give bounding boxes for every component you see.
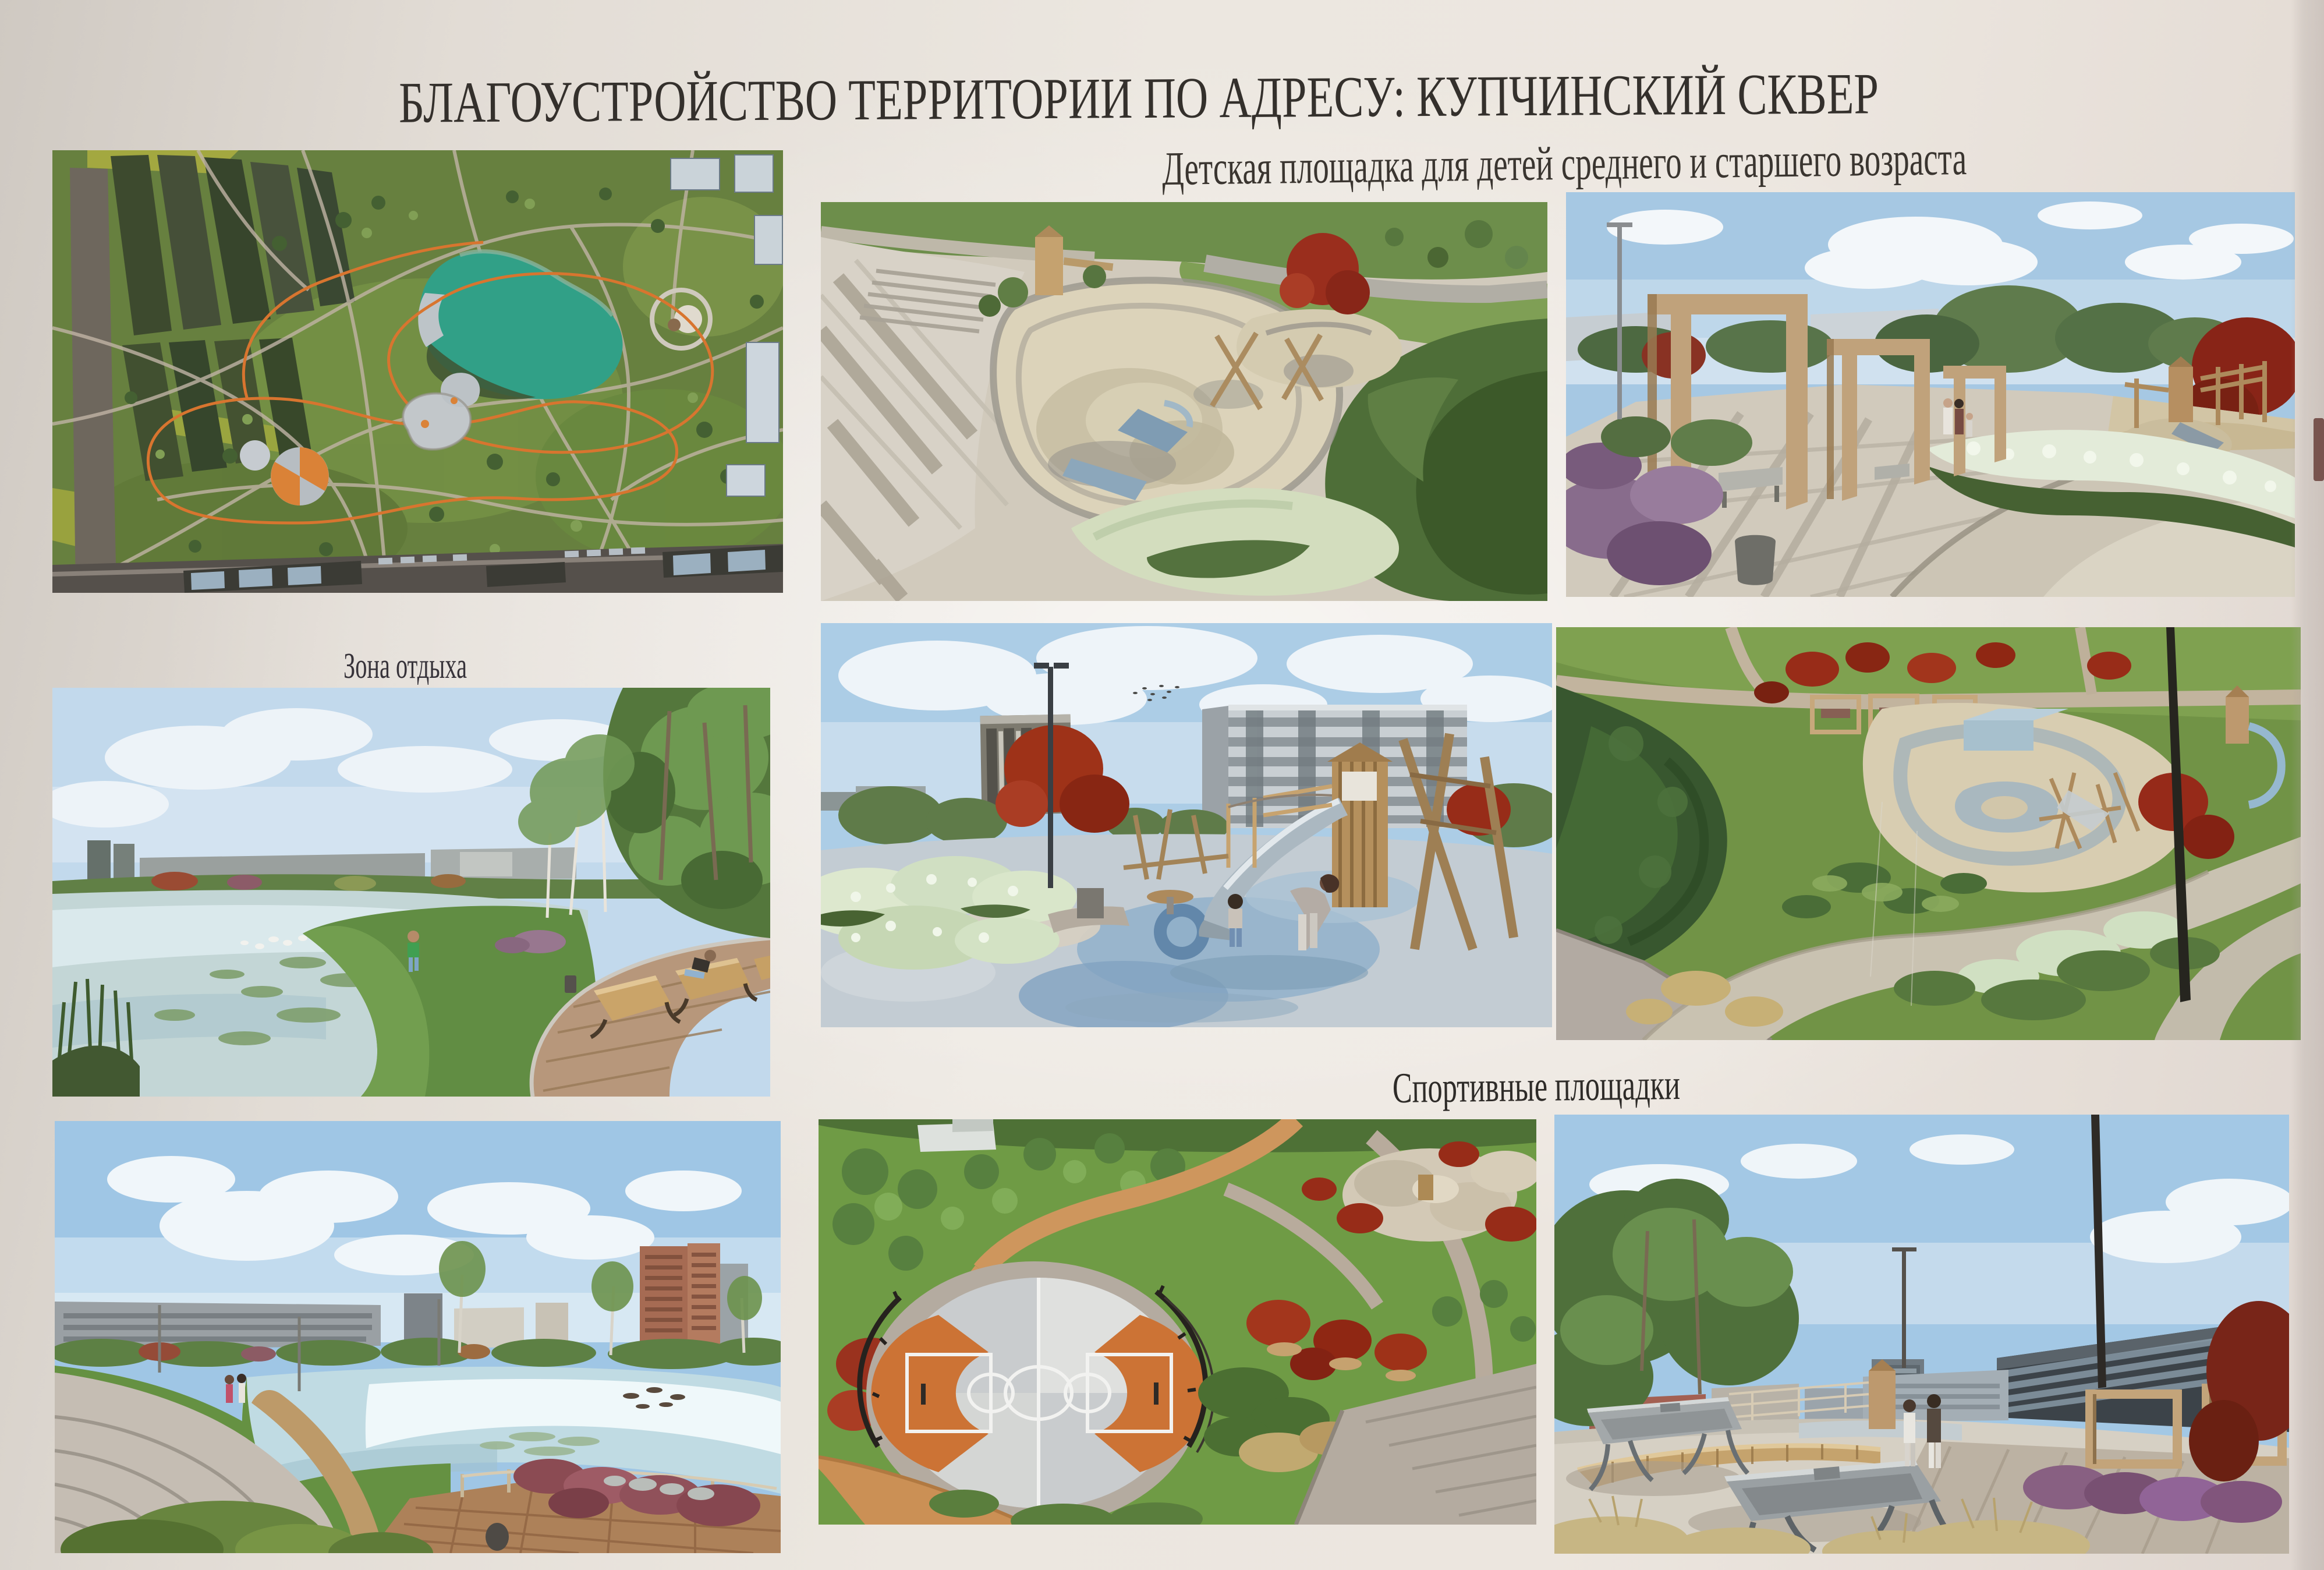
svg-text:Детская площадка для детей сре: Детская площадка для детей среднего и ст… [1162,132,1967,195]
svg-text:Спортивные площадки: Спортивные площадки [1392,1061,1680,1112]
svg-text:Зона отдыха: Зона отдыха [343,646,467,686]
svg-text:БЛАГОУСТРОЙСТВО ТЕРРИТОРИИ ПО: БЛАГОУСТРОЙСТВО ТЕРРИТОРИИ ПО АДРЕСУ: КУ… [399,61,1879,135]
